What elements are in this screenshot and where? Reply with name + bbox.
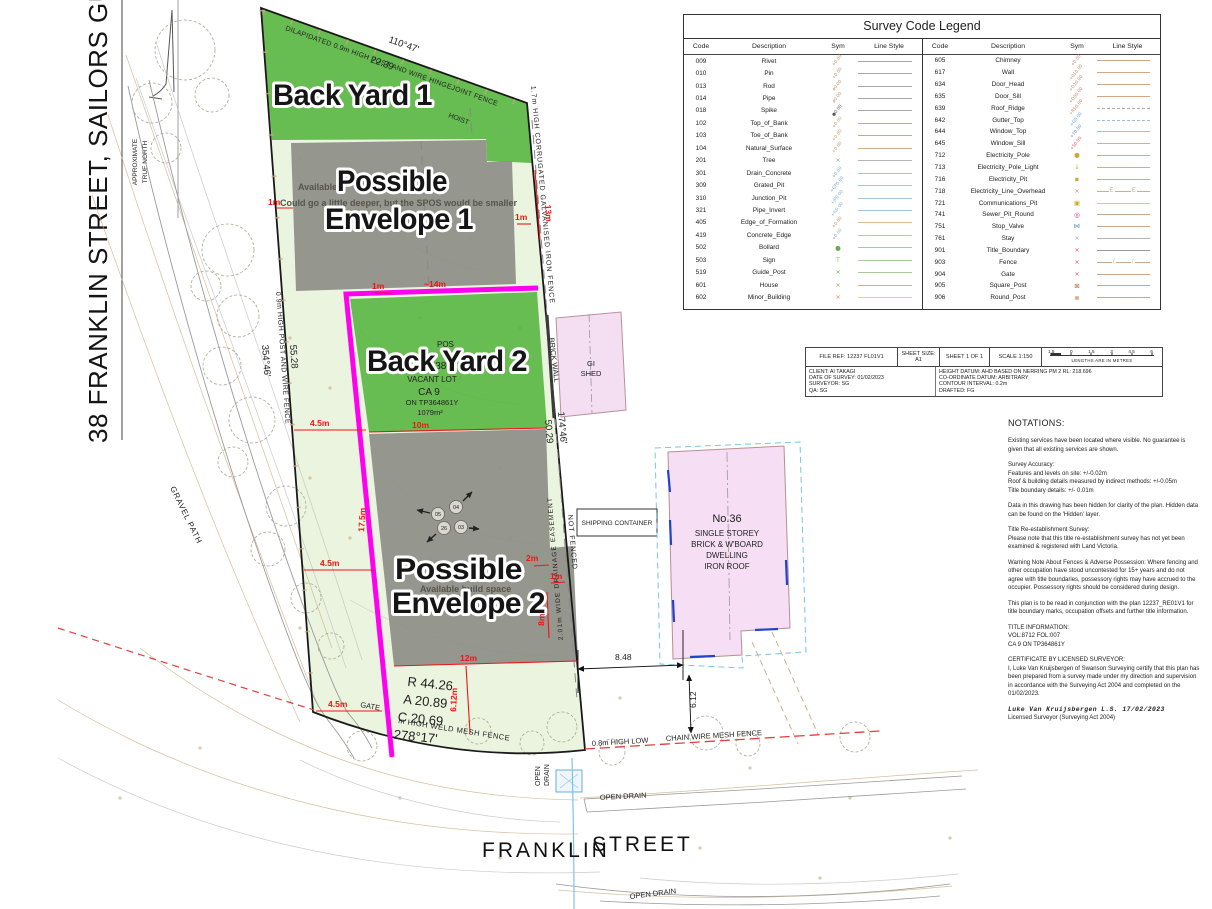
legend-row: 906Round_Post⊗ [923,292,1160,304]
legend-row: 642Gutter_Top+G0.00 [923,114,1160,126]
legend-row: 751Stop_Valve⋈ [923,221,1160,233]
legend-row: 310Junction_Pit+JP0.00 [684,192,922,204]
legend-sym-fence-icon: × [1059,259,1095,266]
dim-45m-a: 4.5m [310,418,330,428]
label-no36: No.36 [712,513,741,525]
culvert [556,758,582,909]
legend-row: 713Electricity_Pole_Light↓ [923,162,1160,174]
legend-row: 009Rivet+0.00 [684,55,922,67]
legend-row: 102Top_of_Bank+0.00 [684,117,922,129]
scale-bar: 1.501.534.56 LENGTHS ARE IN METRES [1042,348,1162,366]
legend-row: 901Title_Boundary× [923,245,1160,257]
legend-row: 519Guide_Post× [684,266,922,278]
notation-paragraph: Title Re-establishment Survey: Please no… [1008,526,1200,552]
label-lot-area: 1079m² [417,408,443,417]
dim-8m: 8m [536,613,547,626]
legend-title: Survey Code Legend [684,15,1160,39]
label-distance-right: 50.29 [542,419,555,444]
tree-marker-04: 04 [453,505,459,511]
legend-sym-square_post-icon: ⊠ [1059,283,1095,290]
qa: QA: SG [809,388,932,394]
frame-lines [122,0,178,440]
label-franklin: FRANKLIN [482,839,610,862]
legend-row: 010Pin+0.00 [684,67,922,79]
tree-marker-03: 03 [458,525,464,531]
dim-175m: 17.5m [356,507,368,532]
notation-paragraph: This plan is to be read in conjunction w… [1008,600,1200,617]
dim-45m-b: 4.5m [320,558,340,568]
legend-row: 718Electricity_Line_Overhead×EE [923,185,1160,197]
label-no36-material: BRICK & W'BOARD [691,540,763,549]
tree-marker-26: 26 [441,526,447,532]
surveyor-signature-sub: Licensed Surveyor (Surveying Act 2004) [1008,715,1200,721]
notation-paragraph: Survey Accuracy: Features and levels on … [1008,461,1200,495]
label-chain-fence-1: 0.8m HIGH LOW [592,735,650,747]
surveyor-signature: Luke Van Kruijsbergen L.S. 17/02/2023 [1008,706,1200,713]
label-available: Available [298,182,337,192]
dim-2m: 2m [526,553,539,563]
legend-sym-communications_pit-icon: ▣ [1059,200,1095,207]
legend-sym-stay-icon: × [1059,235,1095,242]
legend-row: 103Toe_of_Bank+0.00 [684,130,922,142]
label-no36-roof: IRON ROOF [704,562,749,571]
legend-row: 301Drain_Concrete+0.00 [684,167,922,179]
dim-848: 8.48 [615,652,632,662]
legend-sym-electricity_pit-icon: ▪ [1059,176,1095,183]
legend-row: 644Window_Top+T0.00 [923,126,1160,138]
dim-14m: ~14m [424,279,446,289]
legend-row: 639Roof_Ridge+R50.00 [923,102,1160,114]
label-bearing-left: 354°46' [259,344,272,377]
legend-column-right: CodeDescriptionSymLine Style605Chimney+0… [922,39,1160,309]
file-ref: FILE REF: 12237 FL01V1 [806,348,898,366]
legend-sym-gate-icon: × [1059,271,1095,278]
legend-row: 905Square_Post⊠ [923,280,1160,292]
legend-row: 104Natural_Surface+0.00 [684,142,922,154]
label-no36-storey: SINGLE STOREY [695,529,760,538]
tree-marker-05: 05 [435,512,441,518]
legend-sym-electricity_pole_light-icon: ↓ [1059,164,1095,171]
sheet-number: SHEET 1 OF 1 [940,348,990,366]
dim-10m: 10m [412,420,429,430]
label-bearing-top: 110°47' [387,34,420,55]
legend-header: CodeDescriptionSymLine Style [684,39,922,55]
legend-row: 018Spike●0.00 [684,105,922,117]
label-ca9: CA 9 [418,387,440,398]
label-tp364861y: ON TP364861Y [406,398,459,407]
legend-row: 601House× [684,279,922,291]
legend-row: 201Tree× [684,155,922,167]
legend-row: 716Electricity_Pit▪ [923,173,1160,185]
legend-row: 013Rodø0.00 [684,80,922,92]
title-block: FILE REF: 12237 FL01V1 SHEET SIZE: A1 SH… [805,347,1163,397]
dim-13m: 13m [543,204,554,222]
dim-45m-c: 4.5m [328,699,348,709]
legend-row: 014Pipeø0.00 [684,92,922,104]
label-open-vert: OPEN [535,766,542,786]
legend-header: CodeDescriptionSymLine Style [923,39,1160,55]
legend-column-left: CodeDescriptionSymLine Style009Rivet+0.0… [684,39,922,309]
label-shed: SHED [581,369,602,378]
legend-row: 635Door_Sill+D50.00 [923,91,1160,103]
label-gi: GI [587,359,595,368]
label-possible-2: Possible [395,553,522,586]
legend-row: 309Grated_Pit+GP0.00 [684,179,922,191]
legend-row: 712Electricity_Pole● [923,150,1160,162]
dim-1m-right: 1m [515,212,528,222]
notation-paragraph: TITLE INFORMATION: VOL:8712 FOL:007 CA 9… [1008,624,1200,650]
north-label-approximate: APPROXIMATE [132,138,139,185]
sheet-size: SHEET SIZE: A1 [898,348,940,366]
legend-row: 721Communications_Pit▣ [923,197,1160,209]
legend-row: 605Chimney+0.00 [923,55,1160,67]
label-possible-1: Possible [337,165,447,198]
legend-sym-stop_valve-icon: ⋈ [1059,223,1095,230]
label-drain-vert: DRAIN [544,764,551,786]
legend-sym-round_post-icon: ⊗ [1059,295,1095,302]
legend-row: 321Pipe_Invert+IL0.00 [684,204,922,216]
label-back-yard-1: Back Yard 1 [273,79,432,112]
label-open-drain-bottom: OPEN DRAIN [629,886,676,901]
notation-paragraph: Data in this drawing has been hidden for… [1008,502,1200,519]
legend-sym-sewer_pit_round-icon: ◎ [1059,212,1095,219]
legend-row: 502Bollard● [684,242,922,254]
label-no36-dwelling: DWELLING [706,551,748,560]
label-vacant-lot: VACANT LOT [407,375,457,384]
scale: SCALE 1:150 [990,348,1042,366]
dim-612-black: 6.12 [688,691,698,708]
survey-code-legend: Survey Code Legend CodeDescriptionSymLin… [683,14,1161,310]
overhead-lines [752,632,818,744]
legend-row: 634Door_Head+D10.00 [923,79,1160,91]
scale-bar-note: LENGTHS ARE IN METRES [1042,358,1162,363]
label-shipping-container: SHIPPING CONTAINER [582,520,653,527]
label-open-drain-mid: OPEN DRAIN [600,791,647,802]
legend-row: 904Gate× [923,268,1160,280]
dim-1m-left: 1m [268,197,281,207]
label-envelope-1: Envelope 1 [325,203,473,236]
legend-row: 761Stay× [923,233,1160,245]
notations: NOTATIONS: Existing services have been l… [1008,418,1200,721]
label-back-yard-2: Back Yard 2 [367,345,527,378]
legend-row: 602Minor_Building× [684,291,922,303]
legend-row: 645Window_Sill+S0.00 [923,138,1160,150]
label-gravel-path: GRAVEL PATH [168,485,204,545]
dim-12m: 12m [460,653,477,663]
notation-paragraph: Warning Note About Fences & Adverse Poss… [1008,559,1200,593]
legend-sym-electricity_line_overhead-icon: × [1059,188,1095,195]
legend-row: 617Wall+010.00 [923,67,1160,79]
legend-sym-house-icon: × [820,282,856,289]
notation-paragraph: Existing services have been located wher… [1008,437,1200,454]
legend-row: 503Sign⊤ [684,254,922,266]
legend-row: 741Sewer_Pit_Round◎ [923,209,1160,221]
label-street: STREET [592,833,693,856]
dim-1m-env2: 1m [550,571,563,581]
dim-1m-top: 1m [372,281,385,291]
label-distance-left: 55.28 [287,344,300,369]
legend-sym-title_boundary-icon: × [1059,247,1095,254]
drafted: DRAFTED: FG [939,388,1159,394]
possible-envelope-2-region [369,429,578,666]
legend-row: 405Edge_of_Formation+0.00 [684,217,922,229]
notations-heading: NOTATIONS: [1008,418,1200,428]
label-envelope-2: Envelope 2 [392,587,545,620]
legend-row: 903Fence×// [923,256,1160,268]
legend-sym-guide_post-icon: × [820,269,856,276]
legend-sym-minor_building-icon: × [820,294,856,301]
legend-row: 419Concrete_Edge+0.00 [684,229,922,241]
legend-sym-sign-icon: ⊤ [820,257,856,264]
notation-paragraph: CERTIFICATE BY LICENSED SURVEYOR: I, Luk… [1008,656,1200,699]
